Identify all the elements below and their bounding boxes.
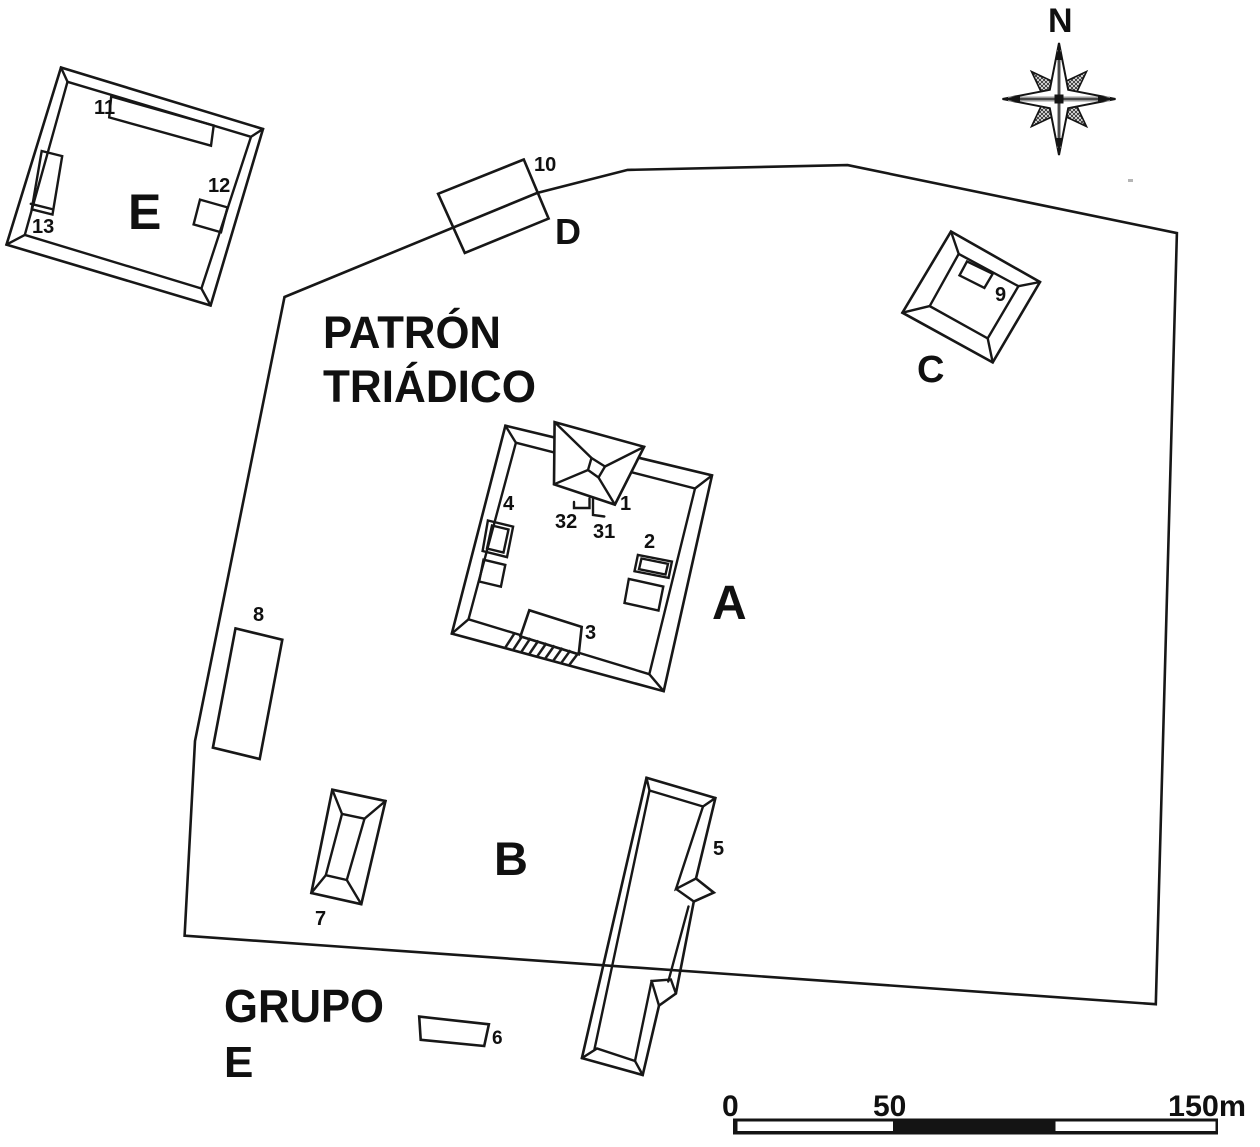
svg-text:13: 13 bbox=[32, 216, 54, 238]
svg-text:12: 12 bbox=[208, 175, 230, 197]
svg-text:6: 6 bbox=[492, 1028, 503, 1049]
svg-text:A: A bbox=[712, 577, 747, 630]
svg-text:50: 50 bbox=[873, 1090, 906, 1123]
svg-text:10: 10 bbox=[534, 154, 556, 176]
svg-text:9: 9 bbox=[995, 284, 1006, 306]
svg-text:0: 0 bbox=[722, 1090, 739, 1123]
svg-text:C: C bbox=[917, 349, 944, 391]
svg-text:7: 7 bbox=[315, 908, 326, 930]
svg-text:11: 11 bbox=[94, 97, 115, 119]
svg-text:3: 3 bbox=[585, 622, 596, 644]
svg-text:4: 4 bbox=[503, 493, 515, 515]
svg-text:32: 32 bbox=[555, 511, 577, 533]
svg-text:1: 1 bbox=[620, 493, 631, 515]
svg-text:E: E bbox=[128, 184, 161, 240]
svg-text:N: N bbox=[1048, 2, 1073, 40]
svg-text:8: 8 bbox=[253, 604, 264, 626]
svg-text:B: B bbox=[494, 832, 528, 885]
svg-text:PATRÓN: PATRÓN bbox=[323, 307, 501, 358]
svg-text:TRIÁDICO: TRIÁDICO bbox=[323, 361, 536, 412]
svg-text:5: 5 bbox=[713, 838, 724, 860]
svg-text:GRUPO: GRUPO bbox=[224, 980, 384, 1032]
svg-text:E: E bbox=[224, 1038, 253, 1087]
svg-text:31: 31 bbox=[593, 521, 615, 543]
svg-text:D: D bbox=[555, 211, 581, 252]
svg-text:150m: 150m bbox=[1168, 1090, 1246, 1123]
svg-text:2: 2 bbox=[644, 531, 655, 553]
